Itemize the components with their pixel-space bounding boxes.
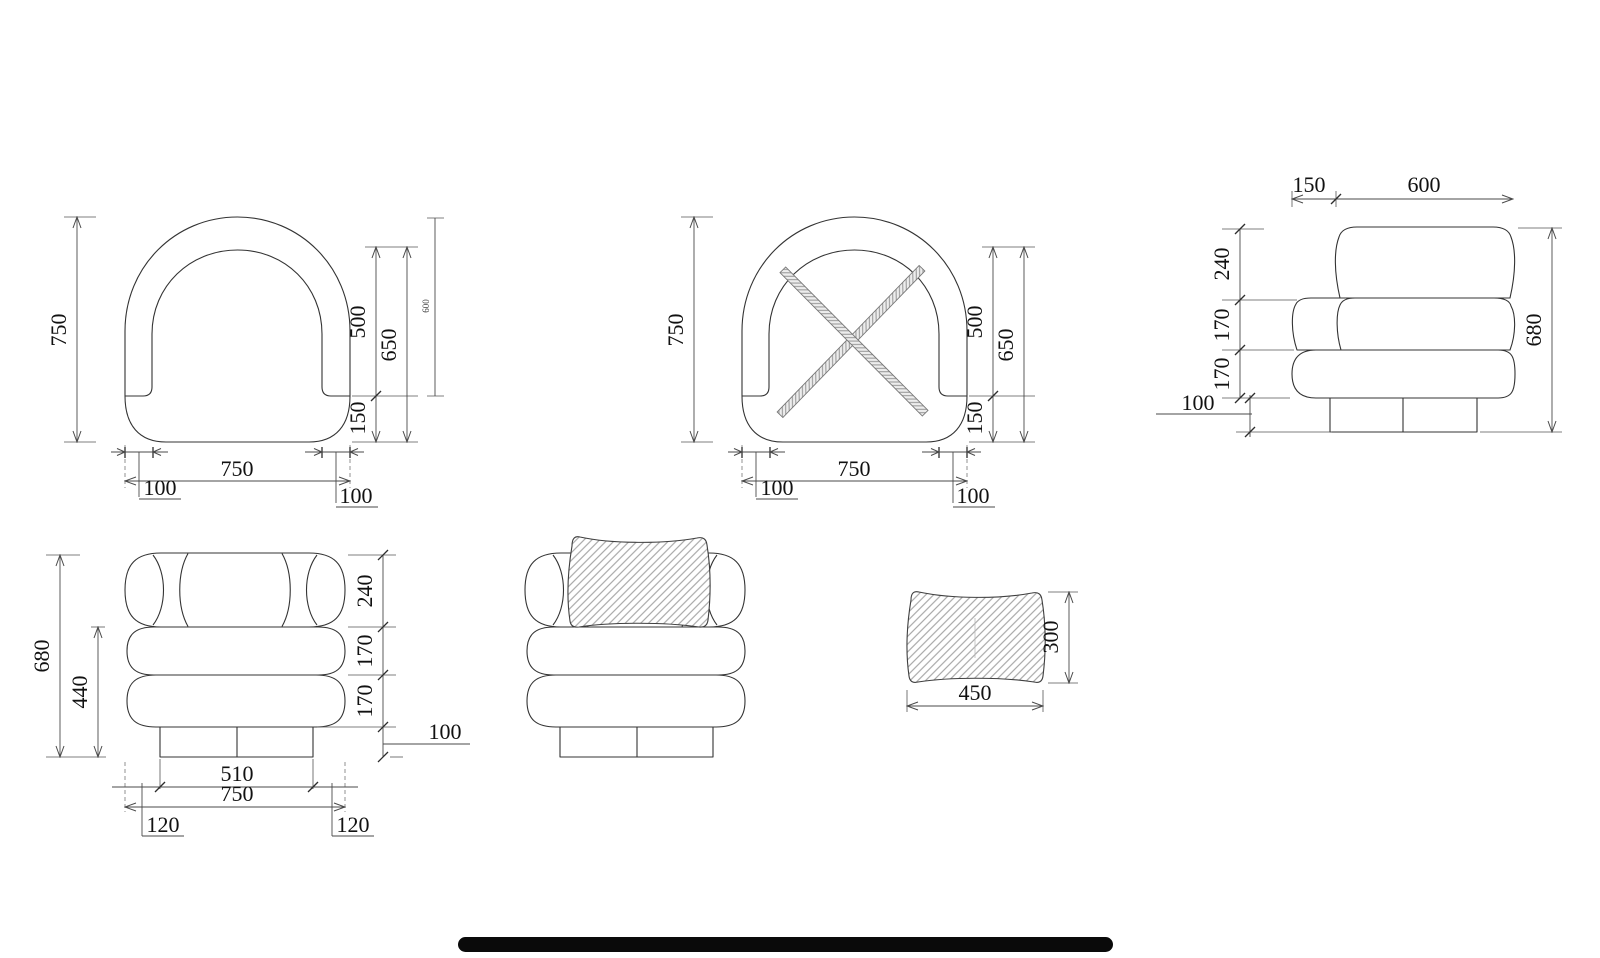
dim-label-arm-left: 100 xyxy=(761,475,794,500)
dim-label-arm-right: 100 xyxy=(340,483,373,508)
furniture-dimension-drawing: 750 500 650 150 600 750 100 xyxy=(0,0,1600,958)
plan-outer-outline xyxy=(125,217,350,442)
dim-label-width: 750 xyxy=(221,781,254,806)
dim-label-base-height: 170 xyxy=(1209,358,1234,391)
dim-label-depth: 750 xyxy=(46,314,71,347)
dim-label-total-height: 680 xyxy=(1521,314,1546,347)
dim-label-depth-to-seat: 600 xyxy=(421,299,431,313)
view-plan-braced: 750 500 650 150 750 100 xyxy=(663,217,1035,508)
front2-bottom-roll xyxy=(527,675,745,727)
dim-label-seat-depth: 600 xyxy=(1408,172,1441,197)
dim-label-depth: 750 xyxy=(663,314,688,347)
dim-label-back-height: 240 xyxy=(1209,248,1234,281)
view-side: 150 600 240 170 170 100 680 xyxy=(1156,172,1562,437)
front2-mid-roll xyxy=(527,627,745,675)
side-bottom-roll xyxy=(1292,350,1515,398)
side-mid-roll xyxy=(1337,298,1515,350)
dim-label-seat-depth-total: 650 xyxy=(993,329,1018,362)
plan2-outer-outline xyxy=(742,217,967,442)
dim-label-cushion-width: 450 xyxy=(959,680,992,705)
dim-label-side-right: 120 xyxy=(337,812,370,837)
dim-label-mid-height: 170 xyxy=(1209,309,1234,342)
cushion-hatched xyxy=(907,592,1045,683)
home-indicator-bar[interactable] xyxy=(458,937,1113,952)
view-plan-top: 750 500 650 150 600 750 100 xyxy=(46,217,444,508)
back-cushion-hatched xyxy=(568,537,710,627)
dim-label-seat-depth: 500 xyxy=(345,306,370,339)
dim-label-back-height: 240 xyxy=(352,575,377,608)
dim-label-cushion-height: 300 xyxy=(1038,621,1063,654)
cad-drawing-page: 750 500 650 150 600 750 100 xyxy=(0,0,1600,958)
dim-label-side-left: 120 xyxy=(147,812,180,837)
dim-label-arm-left: 100 xyxy=(144,475,177,500)
dim-label-arm-right: 100 xyxy=(957,483,990,508)
dim-label-front-band: 150 xyxy=(962,402,987,435)
dim-label-plinth-height: 100 xyxy=(429,719,462,744)
view-front: 680 440 240 170 170 100 xyxy=(29,550,470,837)
dim-label-plinth-height: 100 xyxy=(1182,390,1215,415)
view-front-cushion xyxy=(525,537,745,757)
front-bottom-roll xyxy=(127,675,345,727)
front-mid-roll xyxy=(127,627,345,675)
dim-label-arm-front: 150 xyxy=(1293,172,1326,197)
dim-label-width: 750 xyxy=(221,456,254,481)
dim-label-seat-depth-total: 650 xyxy=(376,329,401,362)
dim-label-front-band: 150 xyxy=(345,402,370,435)
dim-label-width: 750 xyxy=(838,456,871,481)
dim-label-total-height: 680 xyxy=(29,640,54,673)
dim-label-seat-depth: 500 xyxy=(962,306,987,339)
side-back-roll xyxy=(1335,227,1514,298)
dim-label-arm-height: 440 xyxy=(67,676,92,709)
dim-label-mid-height: 170 xyxy=(352,635,377,668)
view-cushion-detail: 300 450 xyxy=(907,592,1078,712)
dim-label-base-height: 170 xyxy=(352,685,377,718)
